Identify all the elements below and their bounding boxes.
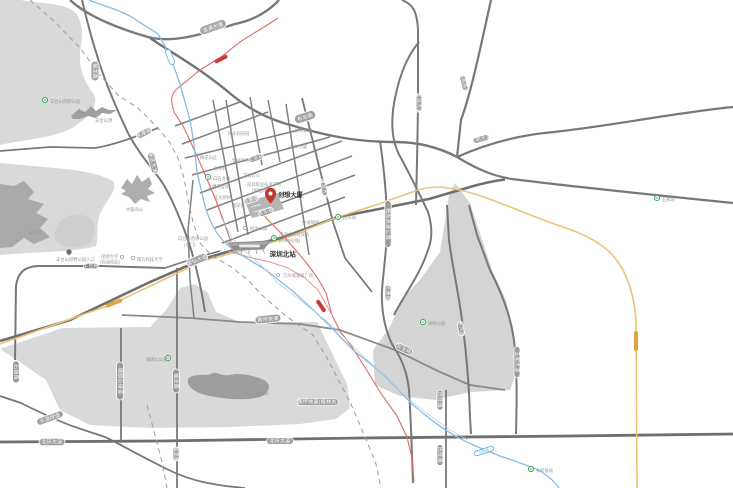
svg-text:福龙路: 福龙路 [172,373,179,389]
svg-text:福龙路: 福龙路 [173,446,180,462]
svg-text:梅花山庄: 梅花山庄 [200,154,218,161]
svg-text:北环大道: 北环大道 [269,438,290,445]
svg-text:长岭陂站: 长岭陂站 [536,467,554,474]
svg-text:民乐翠园: 民乐翠园 [295,127,312,134]
svg-text:民治公园: 民治公园 [250,225,267,232]
svg-text:万众城家居广场: 万众城家居广场 [283,272,314,279]
svg-text:羊台山郊野公园入口: 羊台山郊野公园入口 [56,256,95,263]
svg-text:深圳职业技术学院: 深圳职业技术学院 [247,181,282,188]
svg-text:中海锦城: 中海锦城 [302,219,320,226]
svg-text:白石龙站: 白石龙站 [213,175,231,182]
svg-text:创想大厦: 创想大厦 [277,191,304,199]
svg-text:塘朗山公园: 塘朗山公园 [146,356,167,363]
svg-text:羊台山顶: 羊台山顶 [95,117,113,124]
svg-text:民旺路: 民旺路 [437,392,444,408]
svg-text:塘朗山: 塘朗山 [256,390,269,397]
svg-text:民乐站: 民乐站 [343,214,357,221]
svg-text:白石龙音乐公园: 白石龙音乐公园 [178,235,208,242]
svg-text:羊台山郊野公园: 羊台山郊野公园 [50,98,80,105]
svg-text:南坪快速(梅林关): 南坪快速(梅林关) [297,399,338,406]
svg-text:五和站: 五和站 [662,196,676,203]
svg-text:深圳北站: 深圳北站 [270,250,297,259]
svg-text:羊台山: 羊台山 [28,229,41,236]
svg-text:玉龙新村: 玉龙新村 [214,194,232,201]
svg-text:(4/5/6号线): (4/5/6号线) [279,237,301,244]
svg-text:大脑壳山: 大脑壳山 [126,206,143,213]
svg-text:民康路: 民康路 [385,285,392,301]
svg-text:羊台路: 羊台路 [83,262,99,269]
svg-text:深圳北站地铁站: 深圳北站地铁站 [279,231,310,238]
svg-text:石鼓路: 石鼓路 [13,364,20,380]
svg-text:塘朗山绿道: 塘朗山绿道 [116,368,123,395]
svg-text:南方科技大学: 南方科技大学 [137,256,163,263]
svg-text:万家灯火: 万家灯火 [243,172,261,179]
svg-text:民乐村: 民乐村 [214,165,228,172]
svg-text:福龙路: 福龙路 [91,63,98,79]
svg-text:(西丽校区): (西丽校区) [100,259,121,266]
svg-text:民乐科技园: 民乐科技园 [228,130,249,137]
svg-text:北环大道: 北环大道 [41,439,62,446]
svg-text:民旺路: 民旺路 [437,447,444,463]
svg-text:五和大道: 五和大道 [514,351,521,372]
svg-text:星河传奇: 星河传奇 [232,157,250,164]
svg-text:雅荣苑: 雅荣苑 [232,202,246,209]
svg-text:梅观高速公路: 梅观高速公路 [385,208,392,240]
svg-text:上塘商业街: 上塘商业街 [208,183,230,190]
svg-text:树林公园: 树林公园 [428,320,445,327]
svg-text:民治大道: 民治大道 [416,92,423,113]
svg-text:(东门): (东门) [184,241,196,248]
svg-text:金龙大厦: 金龙大厦 [290,143,308,150]
